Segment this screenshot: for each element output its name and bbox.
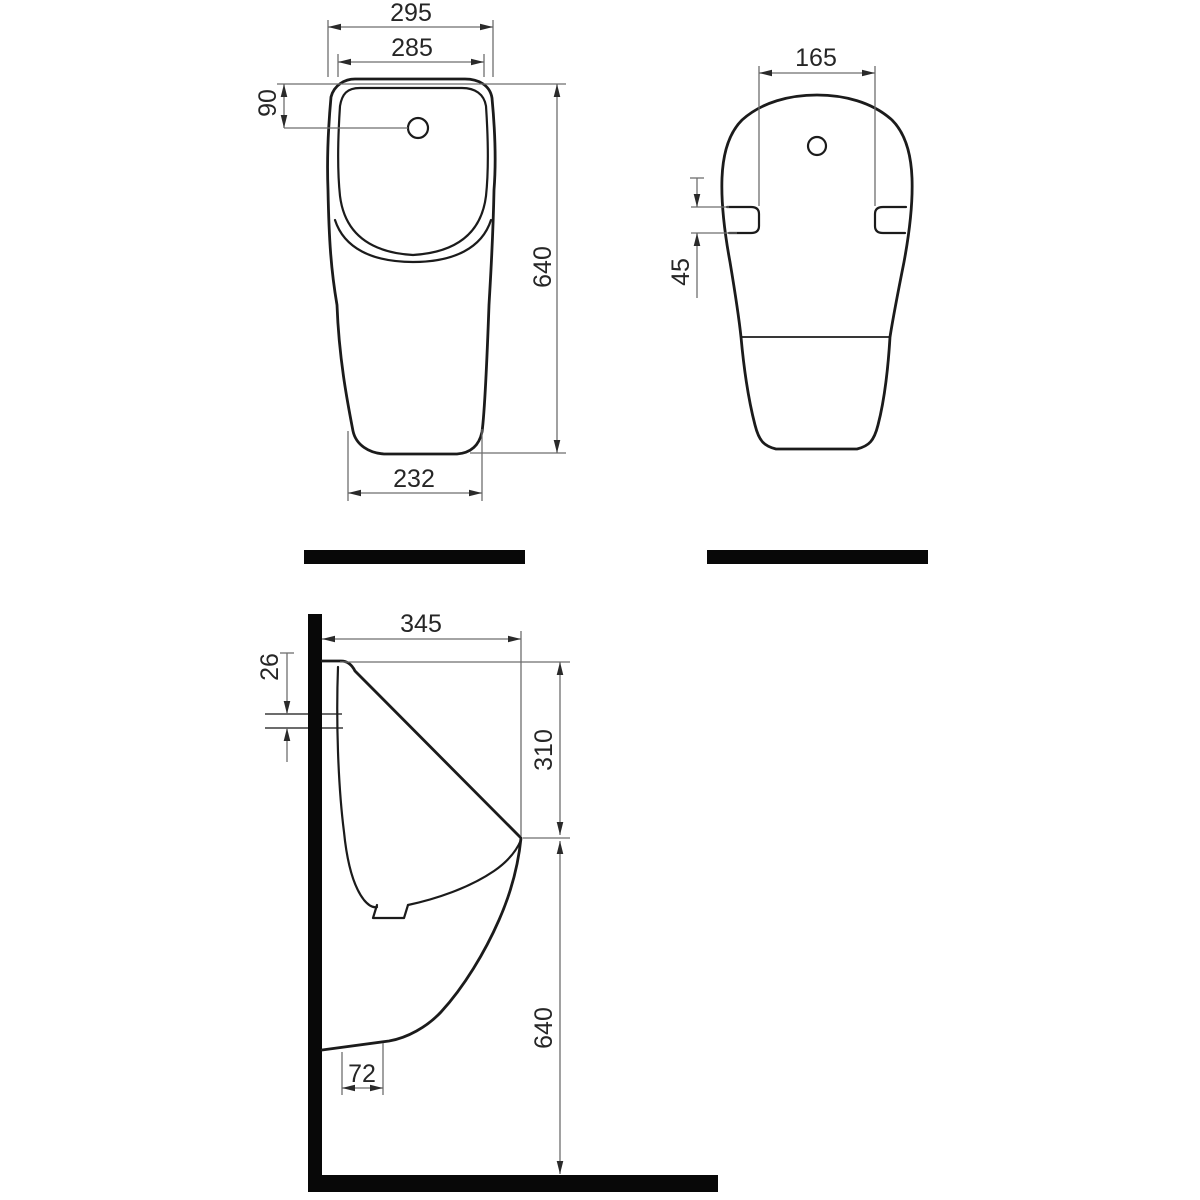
rear-flush-hole xyxy=(808,137,826,155)
technical-drawing-sheet: 295 285 90 640 232 xyxy=(0,0,1200,1200)
dim-side-height: 640 xyxy=(530,841,560,1174)
side-back-contour xyxy=(337,667,377,907)
side-view: 345 26 310 640 72 xyxy=(256,610,718,1192)
rear-body-outline xyxy=(722,95,912,449)
drawing-svg: 295 285 90 640 232 xyxy=(0,0,1200,1200)
dim-label-165: 165 xyxy=(795,44,837,72)
side-drain-outlet xyxy=(373,905,408,918)
front-spud-hole xyxy=(408,118,428,138)
dim-side-outlet-offset: 72 xyxy=(342,1043,383,1095)
rear-bracket-left xyxy=(727,207,759,233)
dim-label-345: 345 xyxy=(400,610,442,638)
side-bowl-line xyxy=(408,840,521,905)
front-bowl-opening xyxy=(338,88,488,255)
dim-label-285: 285 xyxy=(391,34,433,62)
dim-label-310: 310 xyxy=(530,729,558,771)
dim-label-295: 295 xyxy=(390,0,432,27)
dim-label-45: 45 xyxy=(667,258,695,286)
dim-label-26: 26 xyxy=(256,653,284,681)
dim-label-90: 90 xyxy=(254,89,282,117)
rear-view: 165 45 xyxy=(667,44,912,449)
wall-section-bar-left xyxy=(304,550,525,564)
side-body-outline xyxy=(322,661,521,1050)
floor-section-bar xyxy=(308,1175,718,1192)
wall-section-bar xyxy=(308,614,322,1192)
wall-section-bar-right xyxy=(707,550,928,564)
dim-rear-bracket-spacing: 165 xyxy=(759,44,875,206)
dim-label-640-front: 640 xyxy=(529,246,557,288)
rear-bracket-right xyxy=(875,207,906,233)
dim-label-232: 232 xyxy=(393,465,435,493)
dim-side-slot-height: 26 xyxy=(256,653,294,762)
dim-front-inner-width: 285 xyxy=(338,34,484,77)
dim-label-72: 72 xyxy=(348,1060,376,1088)
dim-front-base-width: 232 xyxy=(348,429,482,501)
front-view: 295 285 90 640 232 xyxy=(254,0,566,501)
dim-side-depth: 345 xyxy=(322,610,521,836)
dim-side-top-to-spout: 310 xyxy=(340,662,570,838)
dim-label-640-side: 640 xyxy=(530,1007,558,1049)
